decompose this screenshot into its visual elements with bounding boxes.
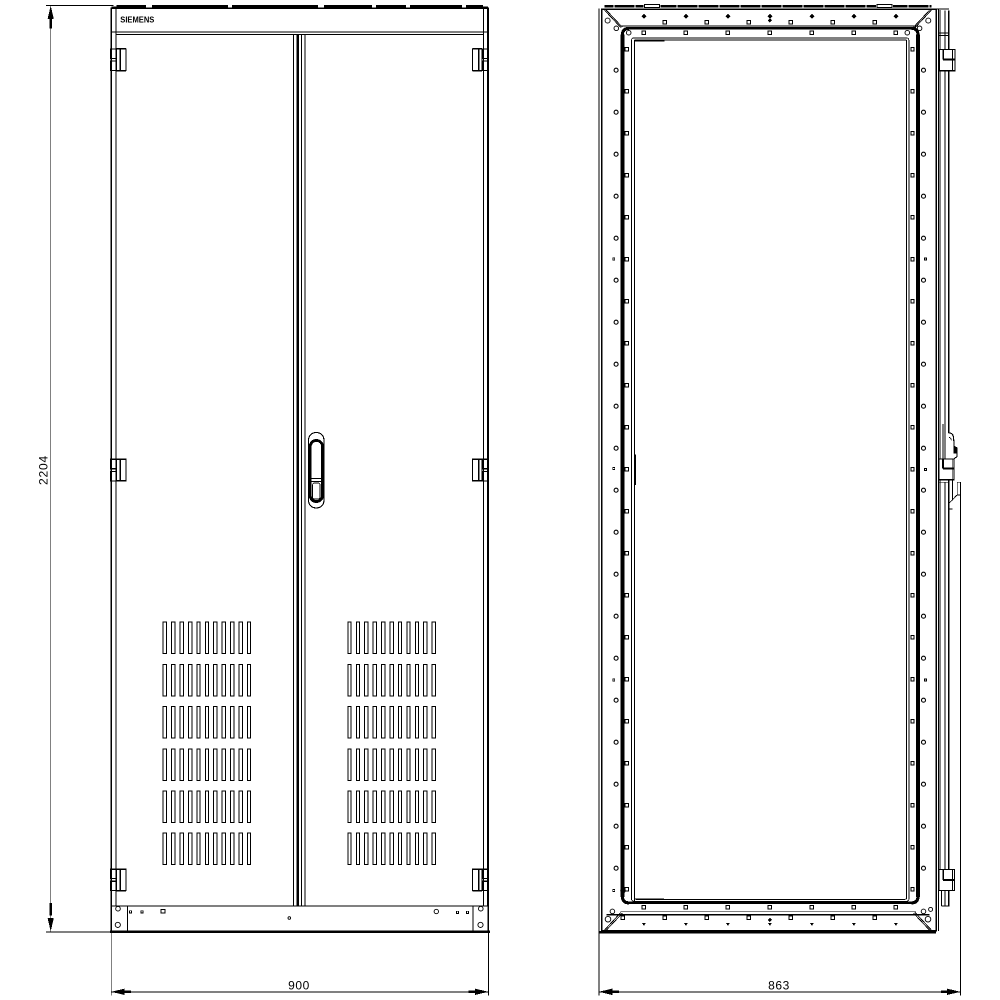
svg-text:2204: 2204 (36, 455, 50, 485)
svg-text:863: 863 (768, 979, 790, 993)
svg-text:SIEMENS: SIEMENS (120, 15, 155, 25)
svg-text:900: 900 (288, 979, 310, 993)
